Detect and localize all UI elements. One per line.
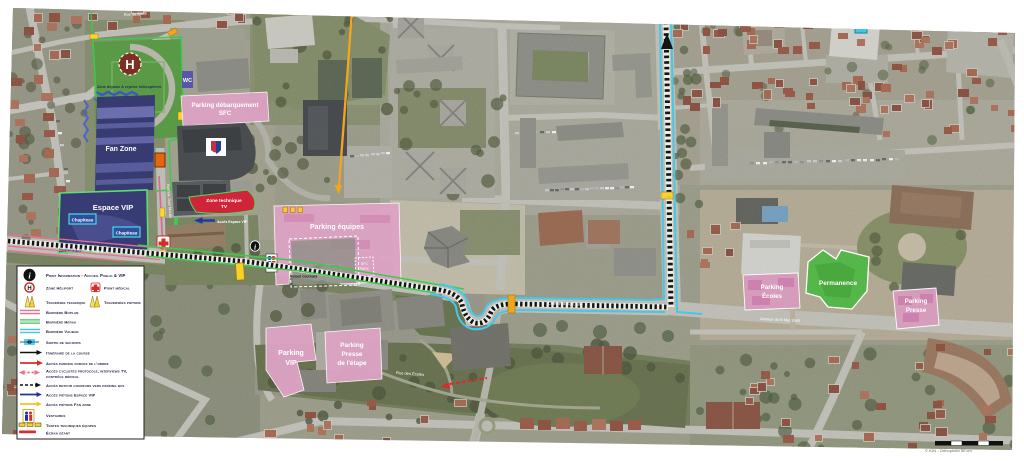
svg-text:Traversée technique: Traversée technique	[46, 300, 85, 305]
svg-text:TV: TV	[221, 204, 228, 210]
svg-text:Traversées piétons: Traversées piétons	[104, 300, 141, 305]
svg-text:Zone dépose & reprise hélicopt: Zone dépose & reprise hélicoptères	[97, 85, 161, 89]
svg-text:Écran géant: Écran géant	[46, 431, 70, 436]
svg-text:SFC: SFC	[361, 262, 369, 266]
svg-text:Accès piétons Fan zone: Accès piétons Fan zone	[46, 402, 91, 407]
svg-text:Accès piétons Espace VIP: Accès piétons Espace VIP	[46, 393, 96, 398]
svg-text:Vestiaires: Vestiaires	[46, 413, 66, 418]
svg-text:PARC: PARC	[360, 267, 370, 271]
svg-text:Presse: Presse	[906, 307, 927, 314]
svg-text:Parking débarquement: Parking débarquement	[191, 102, 258, 109]
svg-text:contrôle médical: contrôle médical	[46, 374, 79, 379]
svg-text:Parking: Parking	[340, 342, 364, 349]
svg-text:Barrière Boplan: Barrière Boplan	[46, 310, 78, 315]
svg-text:Accès Espace VIP: Accès Espace VIP	[217, 220, 248, 224]
svg-text:VIP: VIP	[285, 360, 297, 367]
svg-text:Sortie de secours: Sortie de secours	[46, 340, 81, 345]
svg-text:Chapiteau: Chapiteau	[116, 231, 138, 236]
svg-text:Parking: Parking	[905, 298, 928, 305]
svg-text:Fan Zone: Fan Zone	[105, 146, 136, 153]
svg-text:Accès parking forces de l'ordr: Accès parking forces de l'ordre	[46, 361, 109, 366]
svg-text:Tentes techniques équipes: Tentes techniques équipes	[46, 423, 96, 428]
svg-text:Parking: Parking	[761, 284, 784, 291]
svg-text:WC: WC	[183, 78, 192, 84]
svg-text:Presse: Presse	[342, 351, 363, 358]
svg-text:Parking équipes: Parking équipes	[310, 224, 364, 231]
svg-text:Permanence: Permanence	[819, 280, 857, 287]
svg-text:Point médical: Point médical	[104, 286, 130, 291]
svg-text:Itinéraire de la course: Itinéraire de la course	[46, 351, 90, 356]
svg-text:de l'étape: de l'étape	[337, 360, 367, 367]
svg-text:Zone Héliport: Zone Héliport	[46, 286, 73, 291]
svg-text:Chapiteau: Chapiteau	[72, 218, 94, 223]
svg-text:Accès retour coureurs vers par: Accès retour coureurs vers parking bus	[46, 383, 124, 388]
svg-text:© IGN - Orthophoto 50 cm: © IGN - Orthophoto 50 cm	[925, 448, 972, 453]
svg-text:Zone technique: Zone technique	[206, 198, 242, 204]
svg-text:Écoles: Écoles	[762, 292, 783, 300]
svg-text:Espace VIP: Espace VIP	[93, 203, 133, 212]
svg-text:Parking: Parking	[278, 350, 304, 357]
svg-text:Accès cyclistes protocole, int: Accès cyclistes protocole, interviews TV…	[46, 369, 127, 374]
svg-text:Barrière Vauban: Barrière Vauban	[46, 329, 79, 334]
svg-text:Retour coureurs: Retour coureurs	[290, 275, 317, 279]
svg-text:H: H	[27, 286, 31, 292]
svg-text:H: H	[125, 57, 134, 72]
svg-text:Barrière Heras: Barrière Heras	[46, 320, 76, 325]
svg-text:SFC: SFC	[219, 110, 232, 117]
svg-text:Point Information - Accueil Pu: Point Information - Accueil Public & VIP	[46, 273, 125, 278]
